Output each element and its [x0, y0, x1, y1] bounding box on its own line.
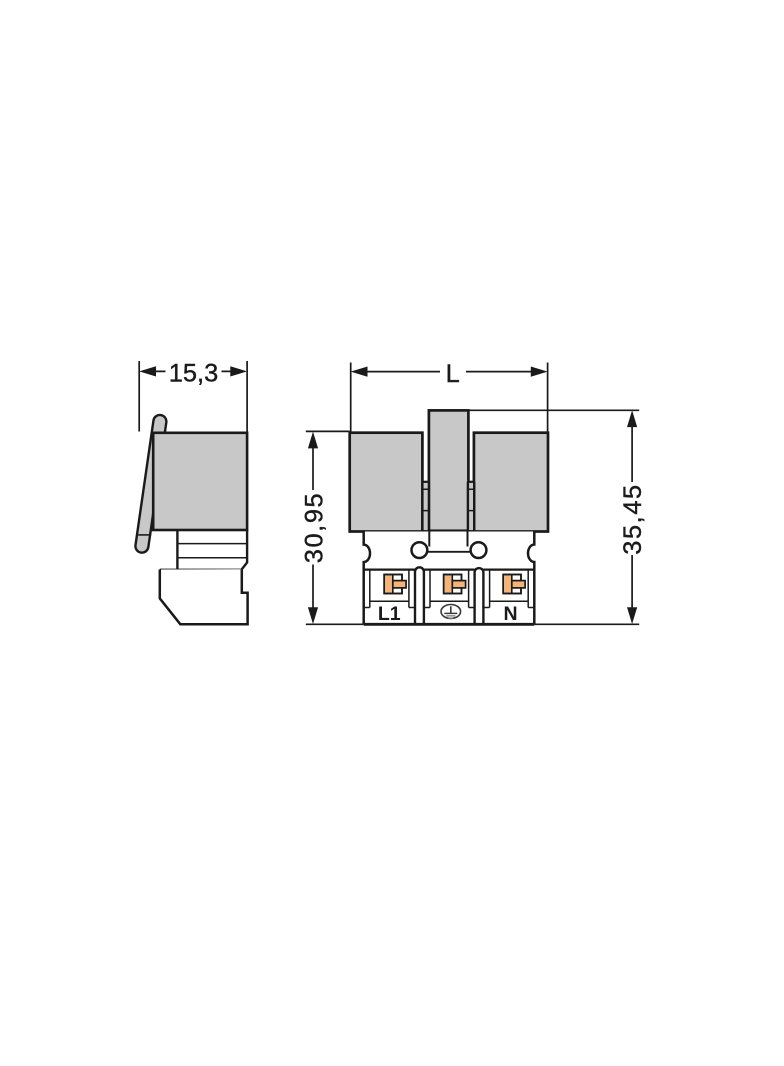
svg-text:35,45: 35,45: [619, 483, 647, 555]
svg-text:30,95: 30,95: [300, 492, 328, 564]
svg-text:L: L: [446, 360, 460, 388]
svg-text:N: N: [503, 603, 517, 625]
svg-text:15,3: 15,3: [169, 360, 218, 388]
svg-text:L1: L1: [378, 603, 401, 625]
